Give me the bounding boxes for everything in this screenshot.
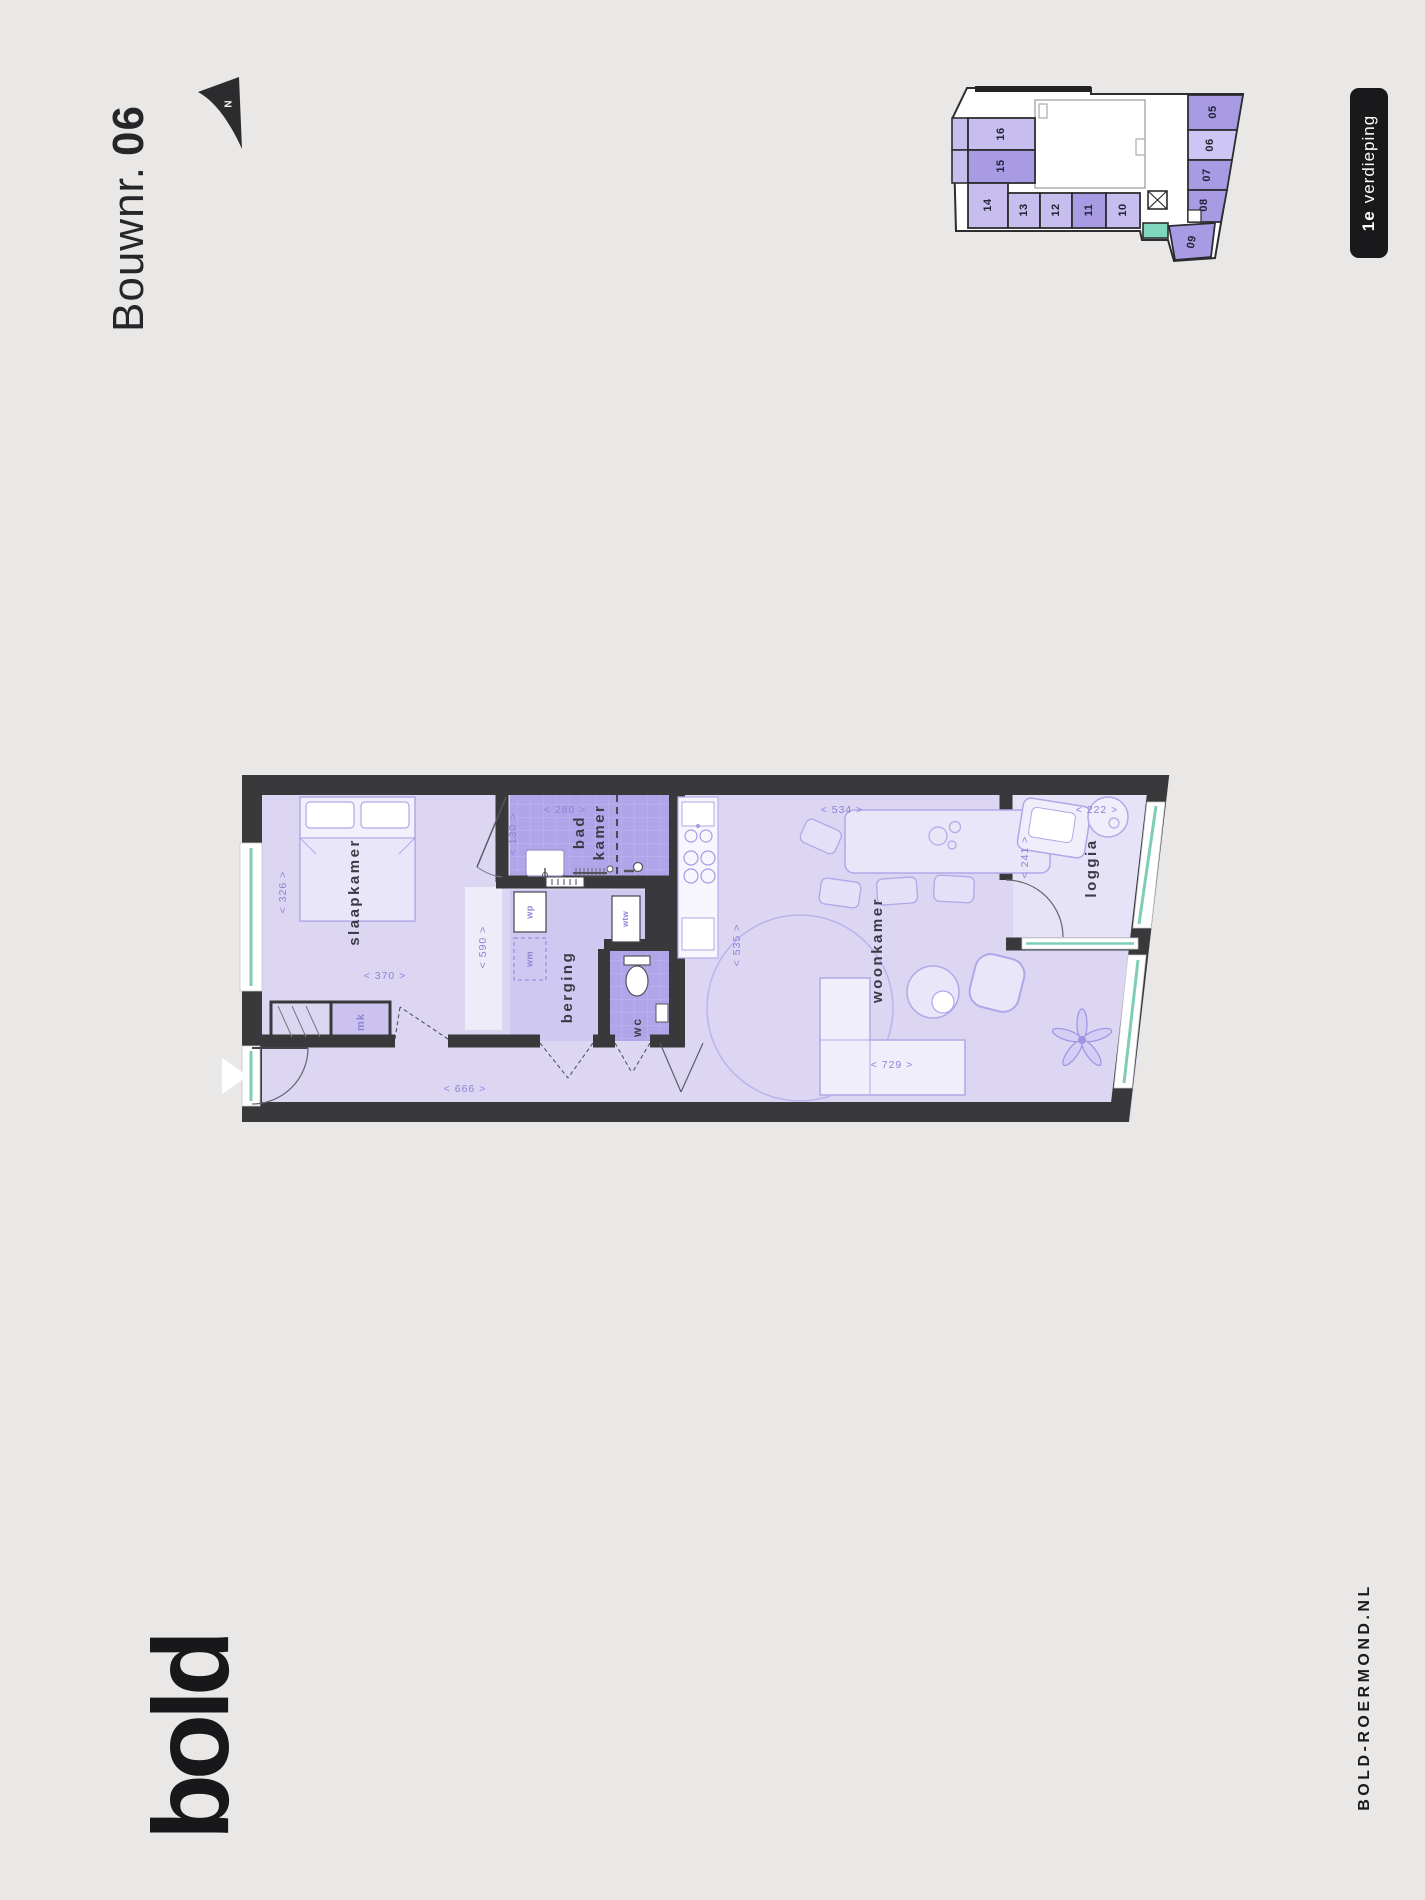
washbasin (526, 850, 564, 878)
badkamer-label-line1: bad (571, 815, 588, 849)
brochure-sheet: Bouwnr. 06 N 1e verdieping (0, 0, 1425, 1900)
page-title-prefix: Bouwnr. (104, 166, 154, 332)
loggia-glass-rail (1022, 938, 1138, 949)
website-url-text: BOLD-ROERMOND.NL (1356, 1583, 1374, 1811)
dim-666: < 666 > (444, 1083, 487, 1095)
dim-534: < 534 > (821, 804, 864, 816)
map-unit-05-label: 05 (1207, 105, 1219, 118)
floor-badge-label: verdieping (1359, 115, 1379, 203)
side-table (907, 966, 959, 1018)
map-unit-16-label: 16 (995, 127, 1007, 140)
map-strip-16 (952, 118, 968, 150)
page-title: Bouwnr. 06 (100, 70, 158, 332)
elevator-icon (1148, 191, 1167, 209)
map-unit-09-label: 09 (1185, 234, 1199, 249)
stairwell (1143, 223, 1168, 238)
mk-label: mk (355, 1013, 367, 1031)
slaapkamer-label: slaapkamer (346, 838, 363, 946)
north-arrow-icon: N (195, 73, 247, 155)
map-unit-11-label: 11 (1083, 204, 1095, 217)
map-unit-10-label: 10 (1117, 203, 1129, 216)
page-title-number: 06 (104, 105, 154, 156)
bold-logo: bold (105, 1644, 277, 1840)
map-unit-06-label: 06 (1204, 138, 1216, 151)
courtyard (1035, 100, 1145, 188)
map-unit-15-label: 15 (995, 159, 1007, 172)
floor-plan: slaapkamer bad kamer berging wc woonkame… (180, 740, 1200, 1140)
map-strip-15 (952, 150, 968, 183)
loggia-label: loggia (1083, 838, 1100, 897)
map-top-wall (975, 86, 1091, 92)
building-overview-map: 05 06 07 08 09 10 11 12 13 14 15 16 (940, 55, 1260, 270)
dim-590: < 590 > (477, 926, 489, 969)
badkamer-label-line2: kamer (591, 804, 608, 861)
kitchen-counter (678, 797, 718, 958)
wc-label: wc (630, 1017, 644, 1038)
map-unit-14-label: 14 (982, 198, 994, 212)
bold-logo-text: bold (137, 1636, 245, 1840)
dim-535: < 535 > (731, 924, 743, 967)
wtw-label: wtw (621, 911, 630, 928)
dim-130: < 130 > (507, 813, 519, 856)
dim-280: < 280 > (544, 804, 587, 816)
floor-badge-number: 1e (1359, 210, 1379, 231)
slaapkamer-window (240, 843, 262, 991)
map-unit-12-label: 12 (1050, 203, 1062, 216)
dim-241: < 241 > (1019, 836, 1031, 879)
floor-badge: 1e verdieping (1350, 88, 1388, 258)
north-arrow-shape (198, 77, 242, 149)
map-unit-08-label: 08 (1198, 198, 1210, 211)
wall-chunk (645, 880, 673, 942)
wc-basin (656, 1004, 668, 1022)
dim-222: < 222 > (1076, 804, 1119, 816)
map-unit-07-label: 07 (1201, 168, 1213, 181)
berging-label: berging (559, 951, 576, 1024)
wp-label: wp (524, 905, 534, 920)
dim-729: < 729 > (871, 1059, 914, 1071)
toilet (624, 956, 650, 996)
vent-grille (546, 877, 584, 887)
north-label: N (224, 100, 235, 107)
map-unit-13-label: 13 (1018, 203, 1030, 216)
wm-label: wm (524, 951, 534, 968)
dim-326: < 326 > (277, 871, 289, 914)
website-url: BOLD-ROERMOND.NL (1352, 1516, 1378, 1878)
dim-370: < 370 > (364, 970, 407, 982)
woonkamer-label: woonkamer (869, 897, 886, 1004)
